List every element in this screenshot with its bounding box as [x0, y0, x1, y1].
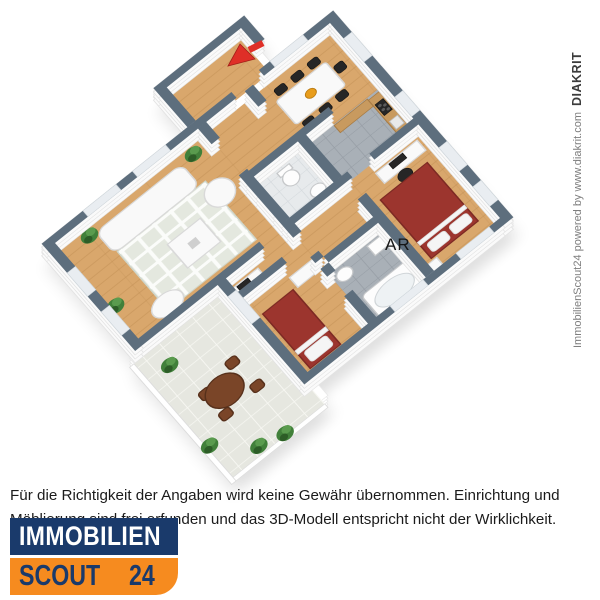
immobilienscout24-logo: IMMOBILIEN SCOUT24 [10, 518, 178, 595]
credit-text: ImmobilienScout24 powered by www.diakrit… [572, 112, 584, 348]
floorplan-page: AR ImmobilienScout24 powered by www.diak… [0, 0, 600, 600]
room-label-ar: AR [385, 235, 411, 254]
logo-line2-word: SCOUT [19, 558, 100, 595]
credit-line: ImmobilienScout24 powered by www.diakrit… [570, 18, 586, 348]
credit-brand: DIAKRIT [570, 52, 584, 106]
logo-line2-number: 24 [129, 558, 155, 595]
logo-immobilien-bar: IMMOBILIEN [10, 518, 178, 555]
logo-scout24-bar: SCOUT24 [10, 558, 178, 595]
logo-line1: IMMOBILIEN [19, 518, 161, 555]
